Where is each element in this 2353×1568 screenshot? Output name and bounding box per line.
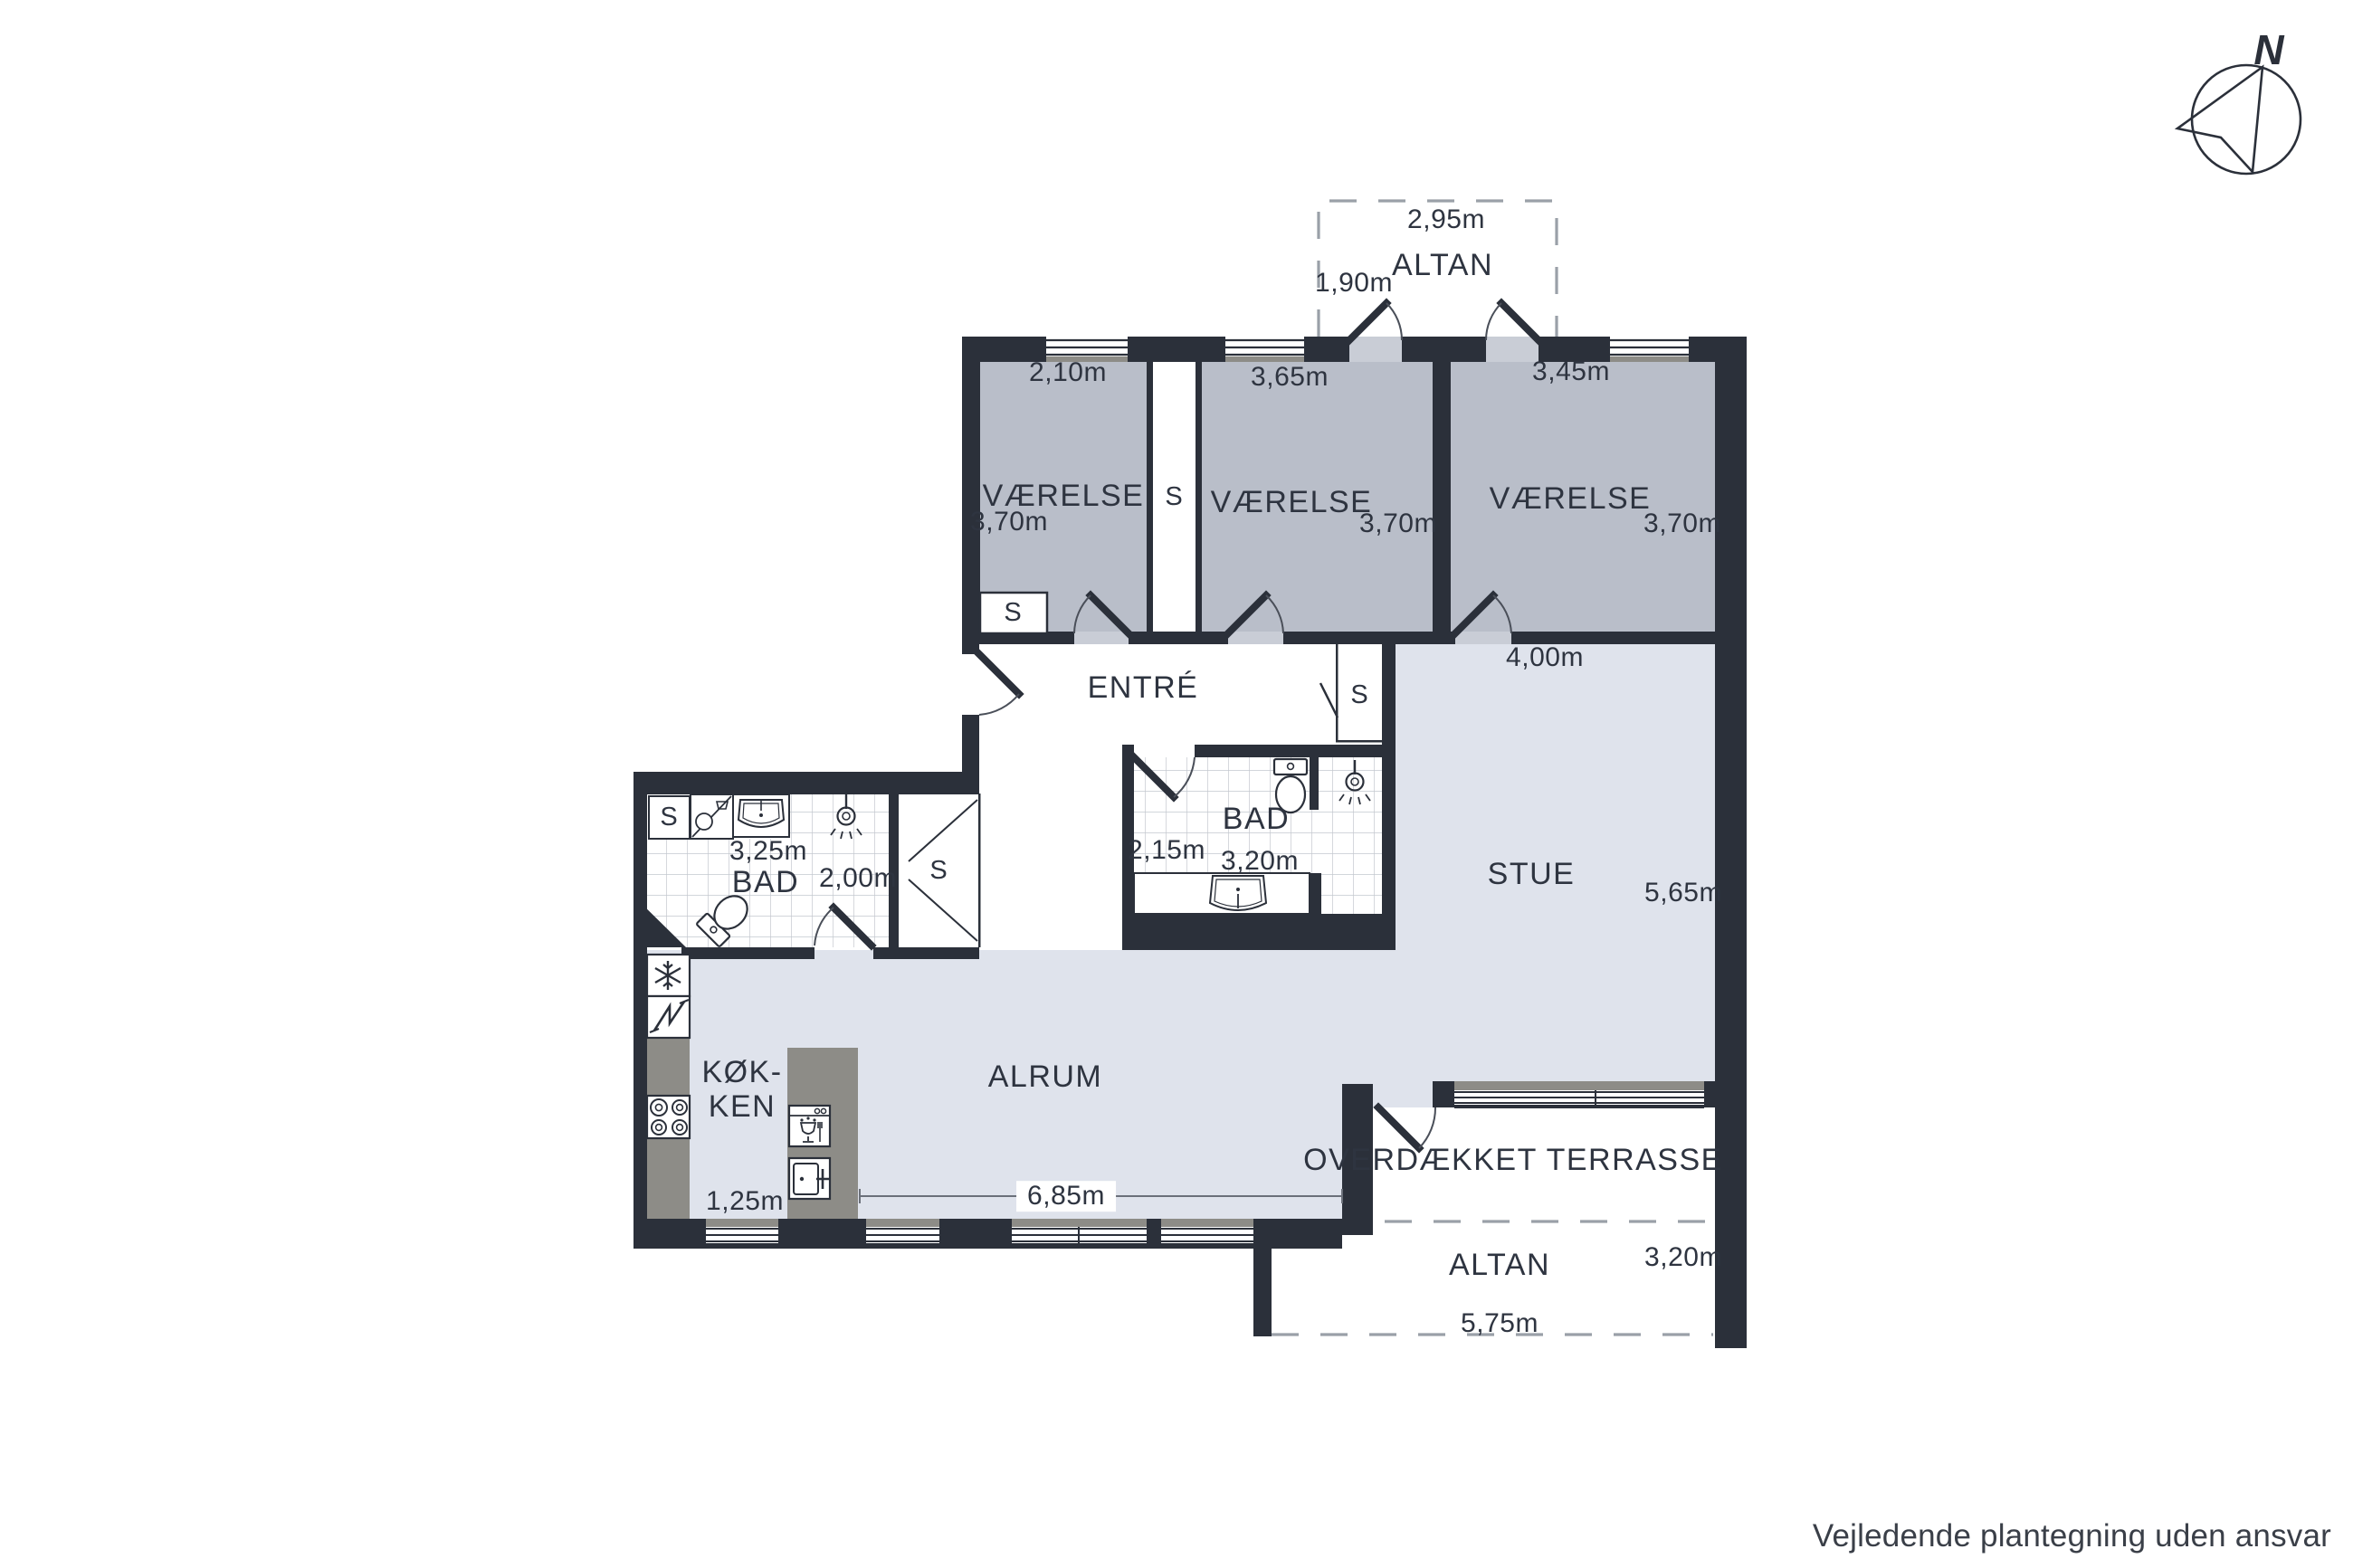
dim-vaerelse3-width: 3,45m bbox=[1532, 356, 1610, 387]
dim-bad1-depth: 2,00m bbox=[819, 863, 897, 894]
sink-icon bbox=[1210, 876, 1266, 910]
dim-altan-top-width: 2,95m bbox=[1407, 204, 1485, 235]
room-label-vaerelse3: VÆRELSE bbox=[1490, 481, 1652, 516]
oven-icon bbox=[789, 1158, 830, 1199]
dim-bad1-width: 3,25m bbox=[729, 836, 807, 867]
room-label-entre: ENTRÉ bbox=[1088, 670, 1199, 705]
dim-bad2-depth: 2,15m bbox=[1128, 835, 1205, 866]
stove-burners-icon bbox=[647, 1096, 690, 1138]
dim-vaerelse3-depth: 3,70m bbox=[1643, 508, 1721, 539]
room-label-bad1: BAD bbox=[732, 865, 799, 899]
floorplan-page: 2,95m ALTAN 1,90m 2,10m VÆRELSE 3,70m S … bbox=[0, 0, 2353, 1568]
room-label-altan-top: ALTAN bbox=[1392, 248, 1493, 282]
dim-koekken-width: 1,25m bbox=[706, 1186, 784, 1217]
dim-altan-top-depth: 1,90m bbox=[1315, 268, 1393, 299]
closet-label-bad: S bbox=[660, 803, 677, 832]
room-label-bad2: BAD bbox=[1223, 802, 1290, 836]
washing-machine-icon bbox=[691, 794, 733, 839]
dim-stue-depth: 5,65m bbox=[1644, 878, 1722, 908]
room-label-alrum: ALRUM bbox=[988, 1060, 1103, 1094]
freezer-snowflake-icon bbox=[647, 955, 690, 996]
dim-vaerelse1-depth: 3,70m bbox=[970, 507, 1048, 537]
dim-altan-bottom-depth: 3,20m bbox=[1644, 1242, 1722, 1273]
dim-vaerelse2-depth: 3,70m bbox=[1359, 508, 1437, 539]
north-arrow-icon bbox=[2177, 65, 2301, 174]
dim-stue-width: 4,00m bbox=[1506, 642, 1584, 673]
room-label-vaerelse2: VÆRELSE bbox=[1211, 485, 1373, 519]
sink-icon bbox=[733, 794, 789, 837]
closet-label-entre: S bbox=[1350, 680, 1367, 709]
fridge-icon bbox=[647, 996, 690, 1038]
floorplan-drawing bbox=[0, 0, 2353, 1568]
room-label-terrasse: OVERDÆKKET TERRASSE bbox=[1303, 1143, 1723, 1177]
dim-vaerelse2-width: 3,65m bbox=[1251, 362, 1329, 393]
room-label-koekken: KØK- KEN bbox=[701, 1055, 782, 1124]
dim-bad2-width: 3,20m bbox=[1221, 846, 1299, 877]
closet-label-hall: S bbox=[929, 856, 947, 885]
closet-label-mid: S bbox=[1165, 482, 1182, 511]
dishwasher-icon bbox=[789, 1106, 830, 1146]
compass-north-label: N bbox=[2253, 27, 2283, 74]
room-label-altan-bottom: ALTAN bbox=[1449, 1248, 1550, 1282]
dim-altan-bottom-width: 5,75m bbox=[1461, 1308, 1538, 1339]
disclaimer-text: Vejledende plantegning uden ansvar bbox=[1813, 1518, 2331, 1554]
dim-vaerelse1-width: 2,10m bbox=[1029, 357, 1107, 388]
dim-alrum-width: 6,85m bbox=[1016, 1181, 1116, 1212]
room-label-stue: STUE bbox=[1488, 857, 1576, 891]
closet-label-room1: S bbox=[1004, 598, 1021, 627]
